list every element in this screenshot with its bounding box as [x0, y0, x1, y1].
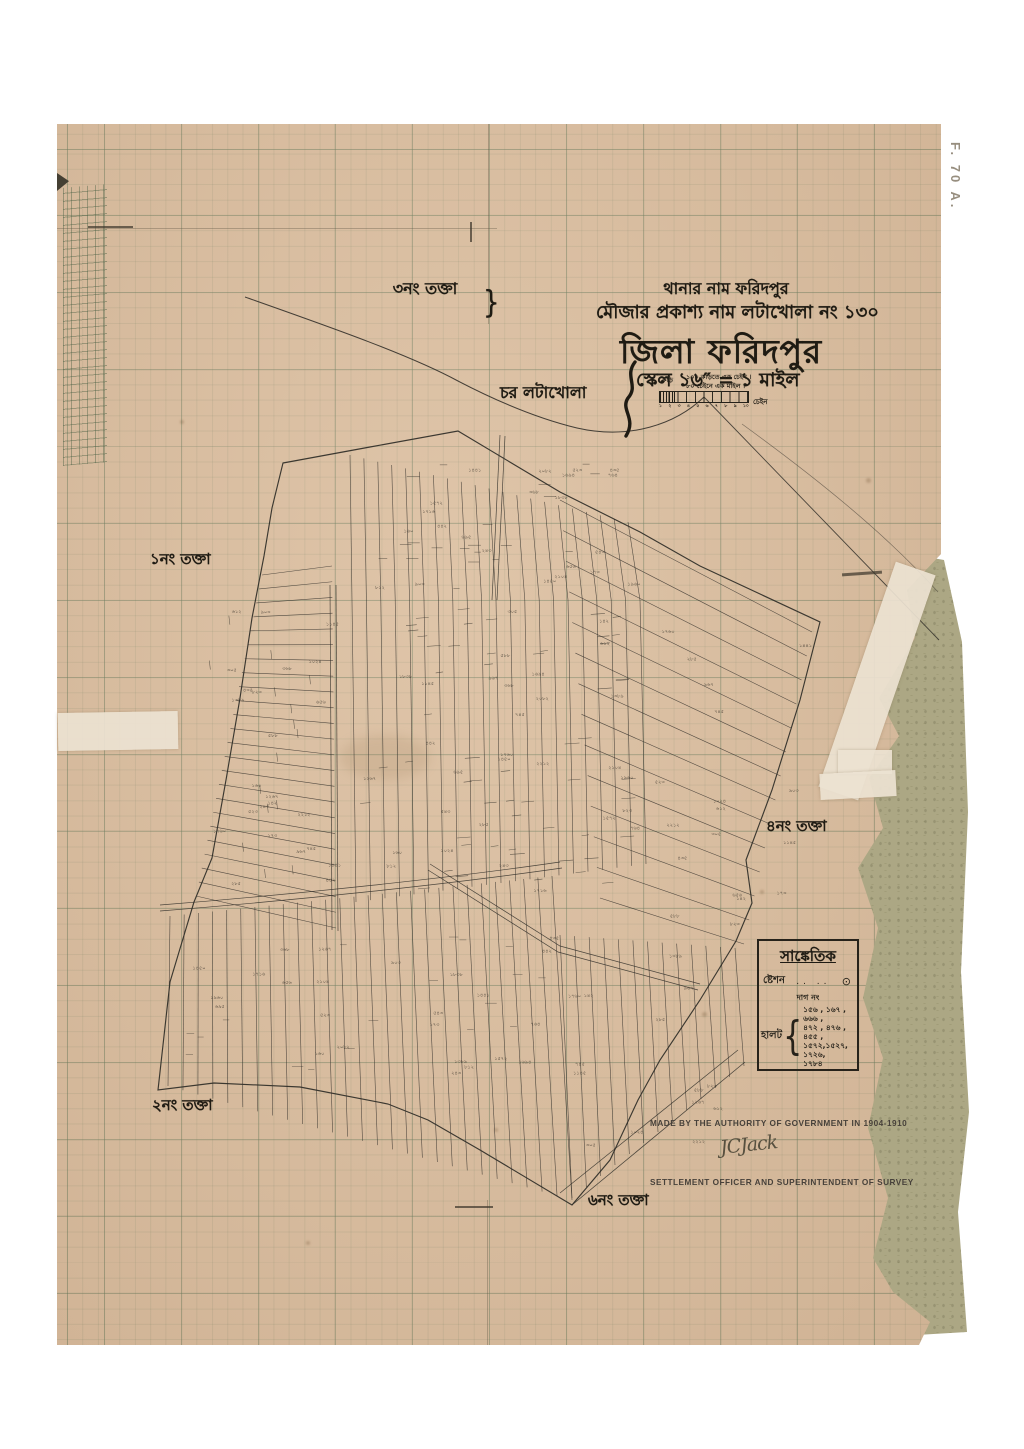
scale-tick: ৬ — [706, 403, 709, 410]
legend-halot-numbers: ১৫৬ , ১৬৭ , ৬৬৬ , ৪৭২ , ৪৭৬ , ৪৫৫ , ১৫৭২… — [803, 1005, 857, 1068]
scale-brace-flourish — [620, 360, 642, 440]
legend-halot-brace: { — [783, 1013, 802, 1060]
takta2-label: ২নং তক্তা — [152, 1094, 213, 1119]
takta6-label: ৬নং তক্তা — [588, 1189, 649, 1214]
legend-dag-no-label: দাগ নং — [759, 992, 857, 1005]
shelf-mark-label: F. 70 A. — [948, 142, 963, 210]
tape-left — [58, 711, 179, 751]
legend-halot-label: হালট — [761, 1028, 782, 1045]
legend-station-label: ষ্টেশন — [763, 973, 785, 990]
registration-mark — [455, 1206, 493, 1208]
scale-tick: ৪ — [687, 403, 690, 410]
halot-numbers-line: ১৫৭২,১৫২৭, ১৭২৬, — [803, 1041, 848, 1059]
halot-numbers-line: ১৭৮৪ — [803, 1059, 822, 1068]
fold-crease-bottom — [487, 1200, 488, 1345]
stain-spot — [306, 1241, 310, 1245]
halot-numbers-line: ১৫৬ , ১৬৭ , ৬৬৬ , — [803, 1005, 846, 1023]
scale-tick: ৭ — [715, 403, 718, 410]
stain-spot — [866, 478, 871, 483]
takta4-label: ৪নং তক্তা — [766, 815, 827, 840]
officer-line: SETTLEMENT OFFICER AND SUPERINTENDENT OF… — [650, 1177, 914, 1187]
scale-tick: ১০ — [743, 403, 749, 410]
fold-crease-horizontal — [57, 228, 497, 229]
tape-right-patch — [819, 770, 896, 800]
scale-tick: ৮ — [724, 403, 727, 410]
scale-tick: ১ — [659, 403, 662, 410]
takta3-title: ৩নং তক্তা — [370, 276, 480, 303]
stain-spot — [760, 890, 764, 894]
registration-mark — [470, 222, 472, 242]
station-symbol-icon: ⊙ — [842, 975, 851, 988]
legend-title: সাঙ্কেতিক — [759, 945, 857, 970]
scale-tick: ৯ — [734, 403, 737, 410]
takta3-brace: } — [483, 285, 500, 321]
scale-right-unit: চেইন — [753, 396, 767, 408]
stain-smudge — [340, 735, 430, 780]
takta1-label: ১নং তক্তা — [150, 548, 211, 573]
scale-tick: ২ — [668, 403, 671, 410]
legend-box: সাঙ্কেতিক ষ্টেশন .. .. ⊙ দাগ নং হালট { ১… — [757, 939, 859, 1071]
halot-numbers-line: ৪৭২ , ৪৭৬ , ৪৫৫ , — [803, 1023, 846, 1041]
legend-station-dots: .. .. — [796, 977, 830, 987]
scale-tick: ৩ — [678, 403, 681, 410]
mouza-name-line: মৌজার প্রকাশ্য নাম লটাখোলা নং ১৩০ — [596, 298, 866, 329]
registration-mark — [88, 226, 133, 228]
stain-spot — [702, 1012, 707, 1017]
scale-bar-hatched-unit — [659, 391, 675, 403]
scale-left-unit: কড়ি — [662, 375, 673, 386]
stain-spot — [180, 420, 184, 424]
char-lotakhola-label: চর লটাখোলা — [500, 380, 586, 407]
stain-spot — [494, 1128, 498, 1132]
scale-tick-labels: ১ ২ ৩ ৪ ৫ ৬ ৭ ৮ ৯ ১০ — [659, 403, 749, 410]
scale-tick: ৫ — [696, 403, 699, 410]
authority-line: MADE BY THE AUTHORITY OF GOVERNMENT IN 1… — [650, 1118, 907, 1128]
